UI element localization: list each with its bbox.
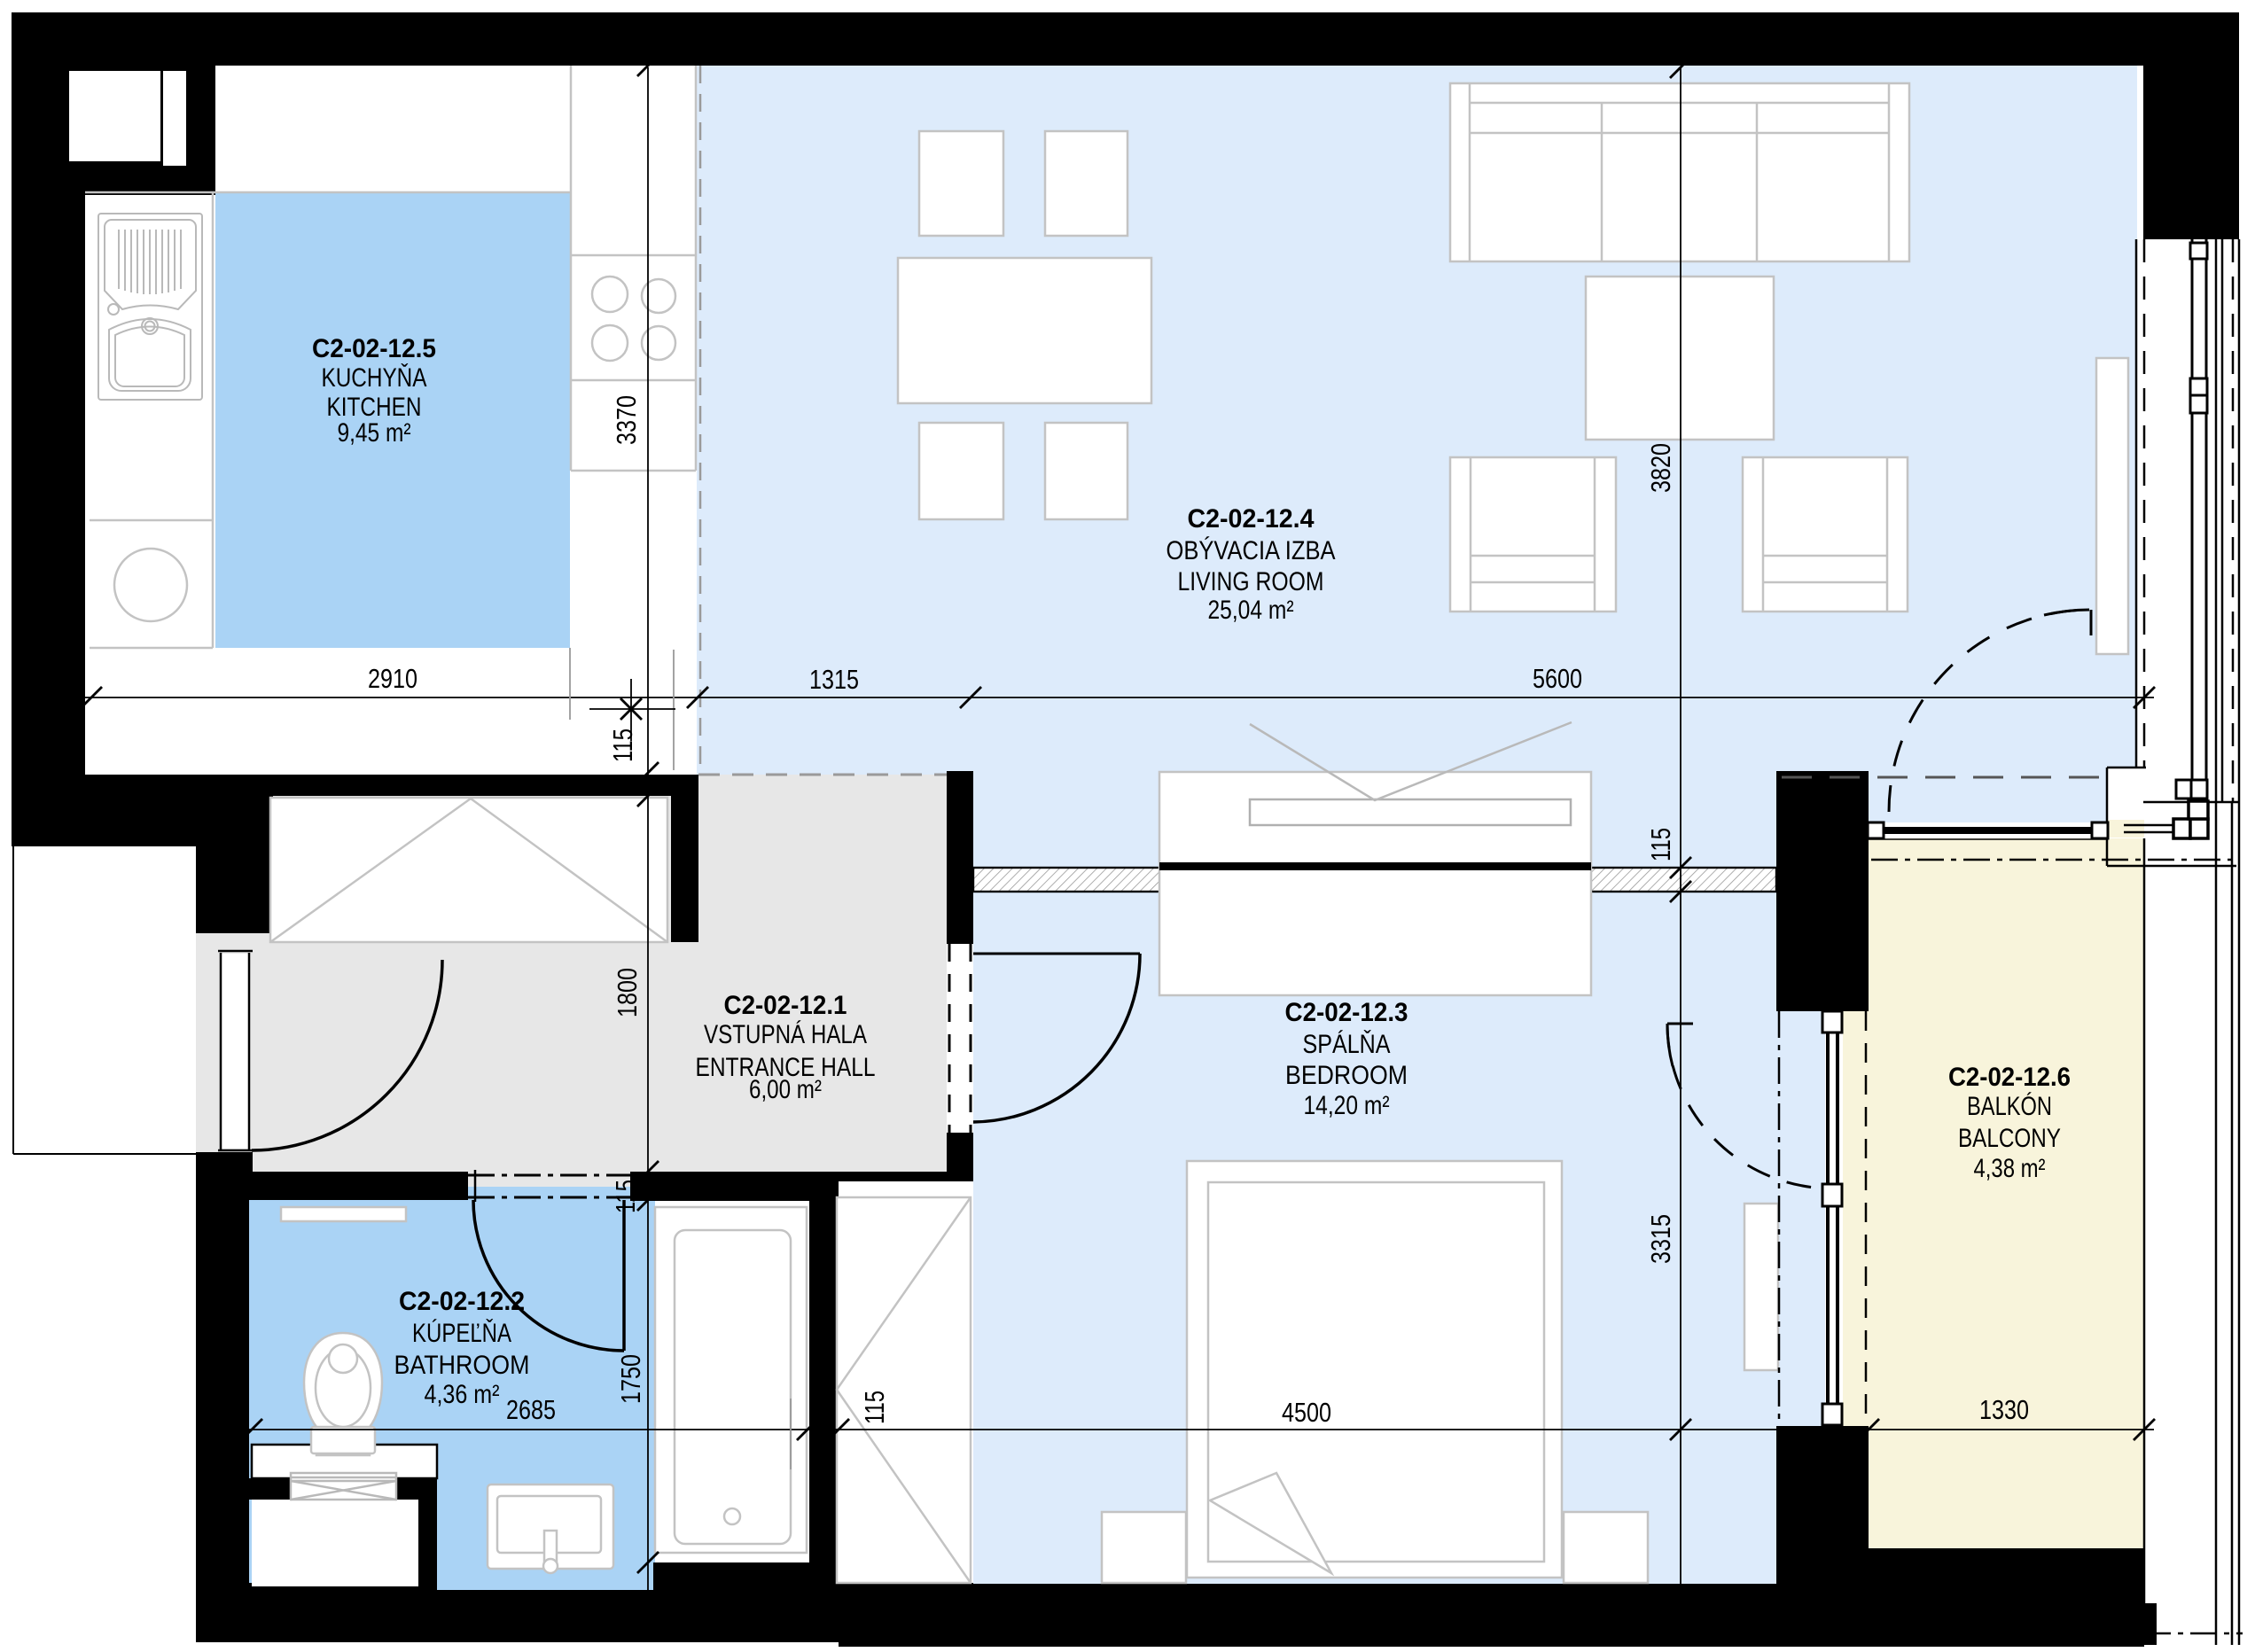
svg-text:C2-02-12.3: C2-02-12.3 (1285, 998, 1408, 1027)
svg-text:BALCONY: BALCONY (1958, 1124, 2061, 1153)
svg-text:BATHROOM: BATHROOM (394, 1351, 530, 1380)
svg-text:1315: 1315 (809, 664, 859, 695)
svg-text:3820: 3820 (1645, 443, 1676, 493)
svg-text:1800: 1800 (612, 968, 643, 1017)
svg-text:4,36 m²: 4,36 m² (425, 1380, 500, 1409)
svg-text:C2-02-12.4: C2-02-12.4 (1188, 504, 1315, 534)
svg-text:3315: 3315 (1645, 1214, 1676, 1264)
svg-text:14,20 m²: 14,20 m² (1304, 1091, 1390, 1120)
svg-text:SPÁLŇA: SPÁLŇA (1303, 1030, 1391, 1059)
svg-text:C2-02-12.1: C2-02-12.1 (724, 991, 847, 1020)
svg-text:115: 115 (610, 1180, 641, 1213)
svg-text:C2-02-12.6: C2-02-12.6 (1948, 1063, 2071, 1092)
svg-text:6,00 m²: 6,00 m² (749, 1075, 822, 1104)
svg-text:C2-02-12.2: C2-02-12.2 (399, 1287, 525, 1316)
svg-text:115: 115 (859, 1391, 890, 1424)
svg-text:115: 115 (1645, 828, 1676, 861)
svg-text:VSTUPNÁ HALA: VSTUPNÁ HALA (704, 1020, 867, 1049)
svg-text:BALKÓN: BALKÓN (1967, 1092, 2052, 1121)
svg-text:25,04 m²: 25,04 m² (1208, 596, 1294, 625)
svg-text:2685: 2685 (506, 1394, 556, 1425)
svg-text:5600: 5600 (1533, 663, 1582, 694)
svg-text:3370: 3370 (611, 395, 642, 445)
svg-text:4500: 4500 (1282, 1397, 1331, 1428)
svg-text:2910: 2910 (368, 663, 417, 694)
svg-text:1750: 1750 (615, 1354, 646, 1404)
svg-text:BEDROOM: BEDROOM (1285, 1061, 1408, 1090)
svg-text:9,45 m²: 9,45 m² (338, 418, 411, 448)
svg-text:1330: 1330 (1979, 1394, 2029, 1425)
svg-text:115: 115 (607, 729, 638, 762)
svg-text:KÚPEĽŇA: KÚPEĽŇA (412, 1319, 511, 1348)
svg-text:LIVING ROOM: LIVING ROOM (1178, 567, 1324, 596)
svg-text:OBÝVACIA IZBA: OBÝVACIA IZBA (1167, 536, 1336, 565)
svg-text:C2-02-12.5: C2-02-12.5 (312, 334, 436, 363)
svg-text:4,38 m²: 4,38 m² (1974, 1154, 2046, 1183)
svg-text:KUCHYŇA: KUCHYŇA (322, 363, 427, 393)
